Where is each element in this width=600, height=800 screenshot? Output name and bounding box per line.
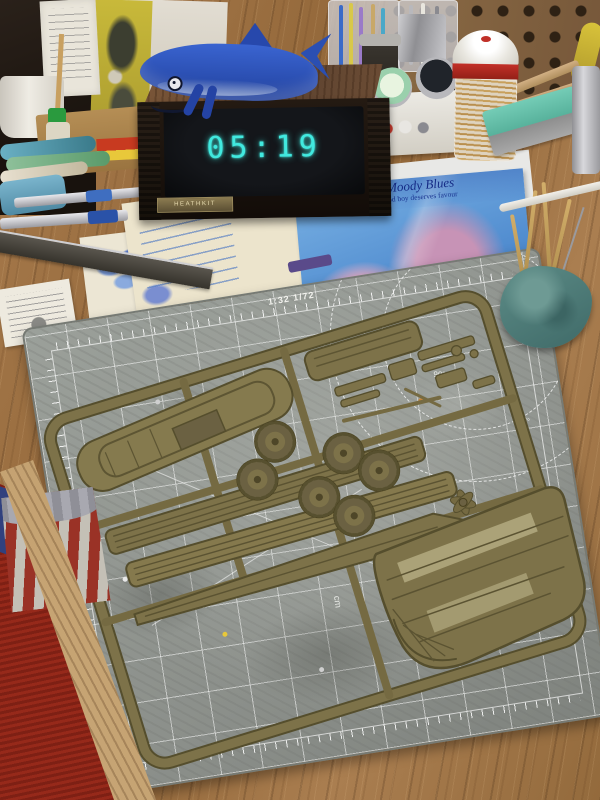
workbench-photo: WING OF LOVE The Moody Blues every good … (0, 0, 600, 800)
lower-hull-part (365, 484, 599, 680)
